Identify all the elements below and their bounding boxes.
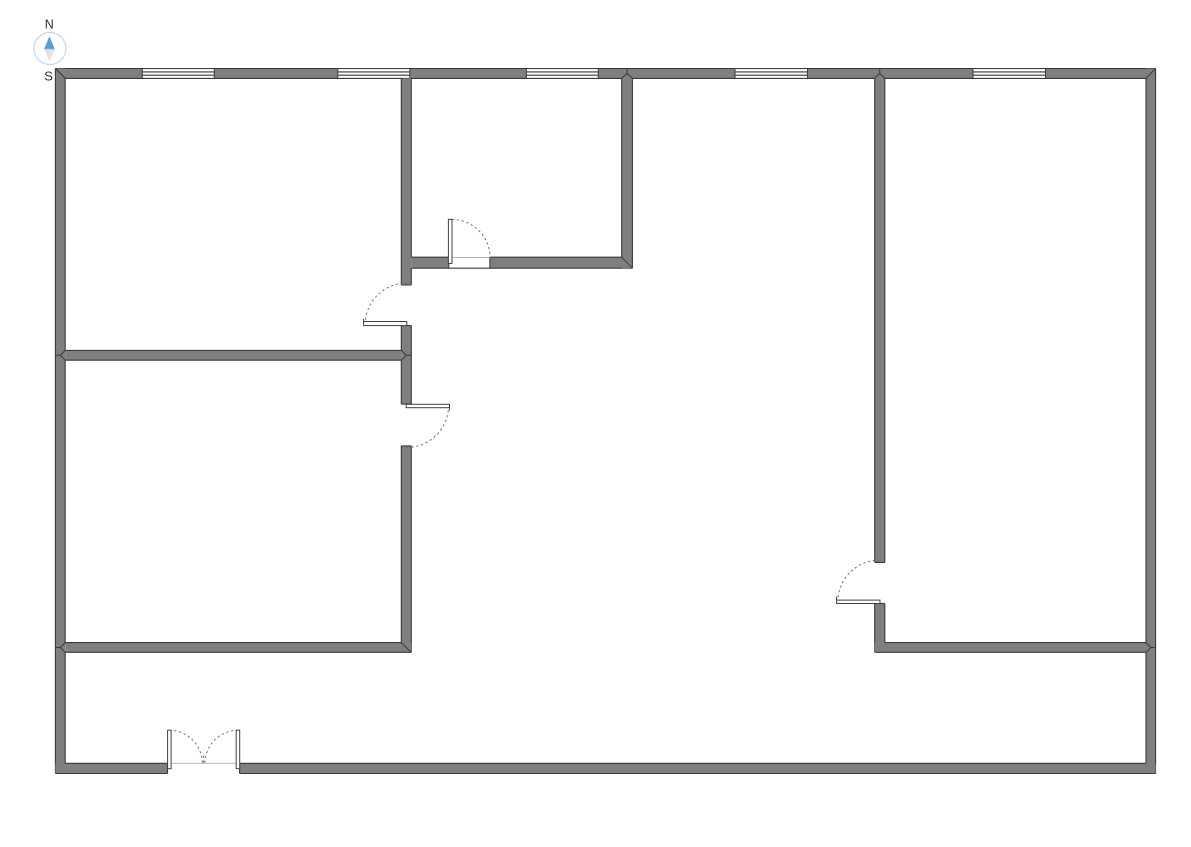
svg-text:N: N xyxy=(45,18,54,32)
svg-text:S: S xyxy=(44,68,53,83)
